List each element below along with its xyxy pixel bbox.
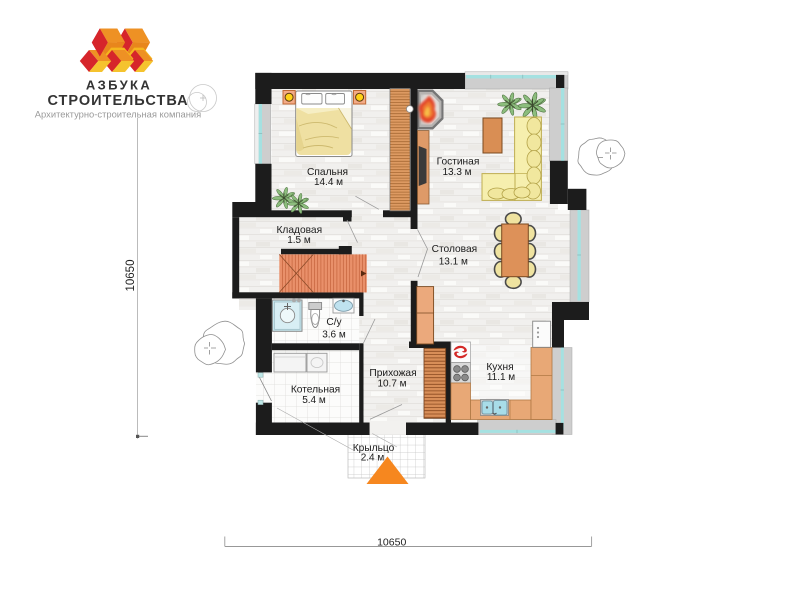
svg-text:13.1 м: 13.1 м — [439, 257, 468, 268]
svg-text:14.4 м: 14.4 м — [314, 177, 343, 188]
svg-text:3.6 м: 3.6 м — [322, 330, 346, 341]
svg-text:Прихожая: Прихожая — [369, 368, 416, 379]
svg-text:Гостиная: Гостиная — [437, 157, 480, 168]
svg-text:10650: 10650 — [125, 260, 137, 292]
svg-text:1.5 м: 1.5 м — [287, 235, 311, 246]
svg-text:С/у: С/у — [326, 317, 342, 328]
svg-text:СТРОИТЕЛЬСТВА: СТРОИТЕЛЬСТВА — [47, 93, 188, 109]
svg-text:2.4 м: 2.4 м — [361, 453, 385, 464]
svg-text:Котельная: Котельная — [291, 385, 340, 396]
svg-text:10.7 м: 10.7 м — [377, 379, 406, 390]
svg-text:10650: 10650 — [377, 537, 406, 549]
svg-text:13.3 м: 13.3 м — [442, 167, 471, 178]
svg-text:5.4 м: 5.4 м — [302, 395, 326, 406]
svg-text:11.1 м: 11.1 м — [487, 372, 515, 383]
svg-text:Архитектурно-строительная комп: Архитектурно-строительная компания — [35, 109, 201, 120]
svg-text:АЗБУКА: АЗБУКА — [86, 78, 152, 93]
svg-text:Столовая: Столовая — [432, 244, 478, 255]
